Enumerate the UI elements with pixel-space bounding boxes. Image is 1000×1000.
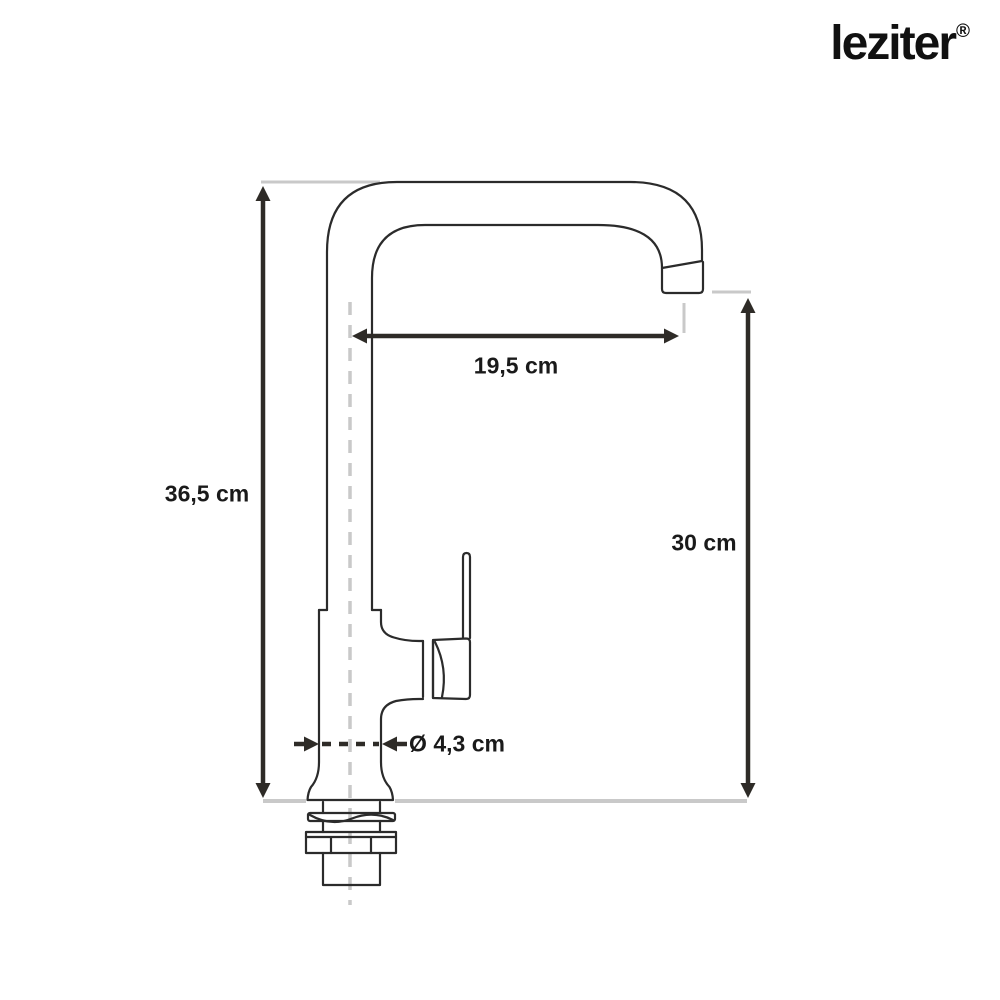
arrowhead-up-icon xyxy=(256,186,271,201)
faucet-line-drawing xyxy=(0,0,1000,1000)
body-upper-fillet xyxy=(381,610,423,641)
nozzle-separator-line xyxy=(662,261,702,268)
valve-seat xyxy=(423,641,433,698)
dimension-label-base-diameter: Ø 4,3 cm xyxy=(409,731,505,758)
arrowhead-down-icon xyxy=(256,783,271,798)
arrowhead-left-icon xyxy=(382,737,397,752)
dimension-label-total-height: 36,5 cm xyxy=(165,481,249,508)
dimension-lines xyxy=(256,186,756,798)
dimension-label-spout-height: 30 cm xyxy=(671,530,736,557)
body-silhouette xyxy=(308,610,424,800)
spout-inner-curve xyxy=(372,225,662,610)
dimension-label-spout-reach: 19,5 cm xyxy=(474,353,558,380)
faucet-outline xyxy=(306,182,703,885)
arrowhead-right-icon xyxy=(304,737,319,752)
arrowhead-up-icon xyxy=(741,298,756,313)
handle-lever-rod xyxy=(463,553,470,638)
faucet-dimension-diagram: leziter® xyxy=(0,0,1000,1000)
arrowhead-left-icon xyxy=(352,329,367,344)
spout-outer-curve xyxy=(327,182,702,610)
arrowhead-right-icon xyxy=(664,329,679,344)
handle-lever-front-curve xyxy=(435,642,444,697)
arrowhead-down-icon xyxy=(741,783,756,798)
